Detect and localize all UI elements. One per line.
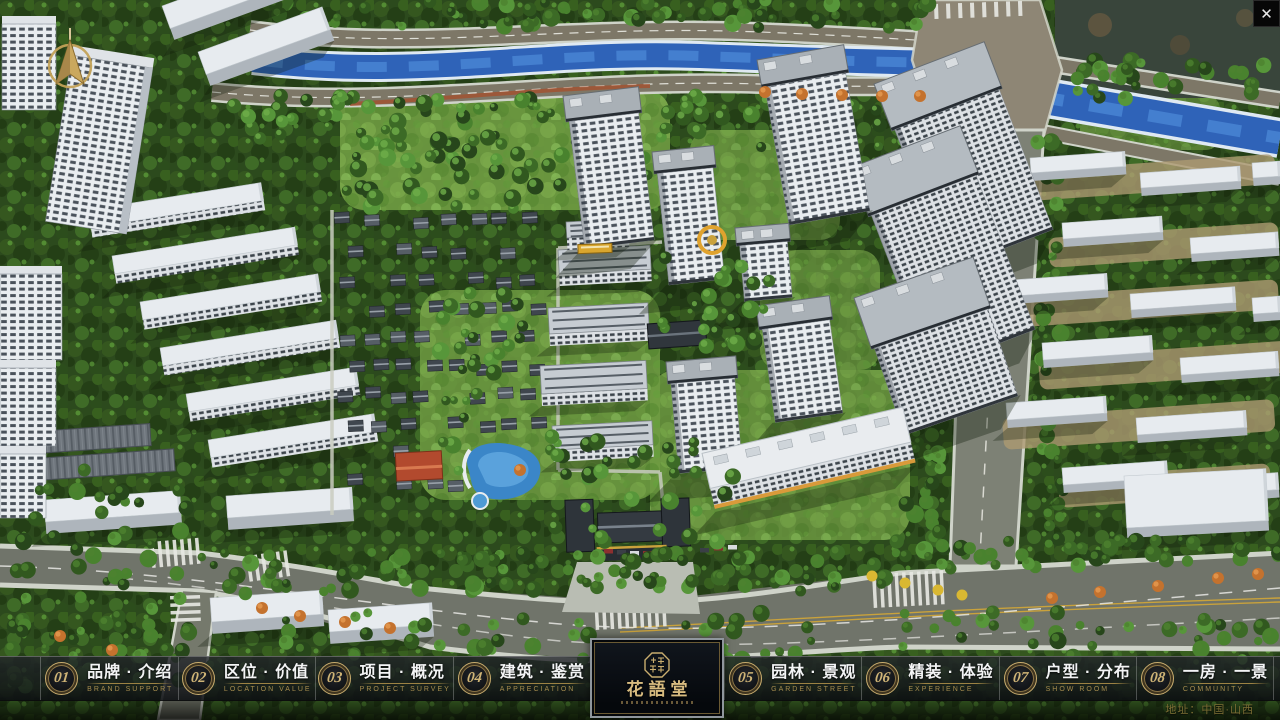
- address-text: 地址：中国·山西: [1165, 701, 1254, 717]
- gold-divider: [500, 683, 586, 684]
- presentation-screen: ✕ 01 品牌 · 介绍 BRAND SUPPORT 02 区位 · 价值 LO…: [0, 0, 1280, 720]
- logo-caption-strip: [621, 701, 693, 704]
- nav-item-finishing-experience[interactable]: 06 精装 · 体验 EXPERIENCE: [861, 657, 998, 700]
- nav-item-brand-intro[interactable]: 01 品牌 · 介绍 BRAND SUPPORT: [40, 657, 178, 700]
- nav-label: 区位 · 价值: [224, 664, 312, 682]
- nav-label: 园林 · 景观: [771, 664, 857, 682]
- nav-right-group: 05 园林 · 景观 GARDEN STREET 06 精装 · 体验 EXPE…: [724, 657, 1274, 700]
- nav-label: 建筑 · 鉴赏: [500, 664, 586, 682]
- nav-caption: EXPERIENCE: [908, 686, 994, 693]
- gold-divider: [1183, 683, 1269, 684]
- close-icon: ✕: [1260, 5, 1273, 23]
- nav-label: 一房 · 一景: [1183, 664, 1269, 682]
- number-badge: 03: [318, 662, 351, 695]
- nav-caption: GARDEN STREET: [771, 686, 857, 693]
- nav-caption: PROJECT SURVEY: [360, 686, 451, 693]
- gold-divider: [1046, 683, 1132, 684]
- bottom-nav-bar: 01 品牌 · 介绍 BRAND SUPPORT 02 区位 · 价值 LOCA…: [0, 656, 1280, 701]
- number-badge: 05: [729, 662, 762, 695]
- nav-item-location-value[interactable]: 02 区位 · 价值 LOCATION VALUE: [178, 657, 316, 700]
- nav-label: 户型 · 分布: [1046, 664, 1132, 682]
- logo-huayutang[interactable]: 花語堂: [590, 638, 724, 718]
- nav-caption: COMMUNITY: [1183, 686, 1269, 693]
- nav-item-project-overview[interactable]: 03 项目 · 概况 PROJECT SURVEY: [315, 657, 453, 700]
- logo-title: 花語堂: [622, 681, 693, 698]
- number-badge: 04: [458, 662, 491, 695]
- gold-divider: [87, 683, 173, 684]
- number-badge: 01: [45, 662, 78, 695]
- nav-item-unit-distribution[interactable]: 07 户型 · 分布 SHOW ROOM: [999, 657, 1136, 700]
- close-button[interactable]: ✕: [1253, 0, 1280, 27]
- number-badge: 08: [1141, 662, 1174, 695]
- nav-item-garden-landscape[interactable]: 05 园林 · 景观 GARDEN STREET: [724, 657, 861, 700]
- nav-label: 项目 · 概况: [360, 664, 451, 682]
- gold-divider: [771, 683, 857, 684]
- nav-caption: APPRECIATION: [500, 686, 586, 693]
- gold-divider: [908, 683, 994, 684]
- nav-caption: SHOW ROOM: [1046, 686, 1132, 693]
- octagonal-seal-icon: [644, 652, 670, 678]
- nav-item-room-view[interactable]: 08 一房 · 一景 COMMUNITY: [1136, 657, 1274, 700]
- nav-caption: LOCATION VALUE: [224, 686, 312, 693]
- nav-caption: BRAND SUPPORT: [87, 686, 173, 693]
- number-badge: 02: [182, 662, 215, 695]
- nav-item-architecture[interactable]: 04 建筑 · 鉴赏 APPRECIATION: [453, 657, 591, 700]
- number-badge: 06: [866, 662, 899, 695]
- nav-left-group: 01 品牌 · 介绍 BRAND SUPPORT 02 区位 · 价值 LOCA…: [40, 657, 590, 700]
- gold-divider: [224, 683, 312, 684]
- nav-label: 品牌 · 介绍: [87, 664, 173, 682]
- number-badge: 07: [1004, 662, 1037, 695]
- nav-label: 精装 · 体验: [908, 664, 994, 682]
- aerial-map[interactable]: [0, 0, 1280, 720]
- gold-divider: [360, 683, 451, 684]
